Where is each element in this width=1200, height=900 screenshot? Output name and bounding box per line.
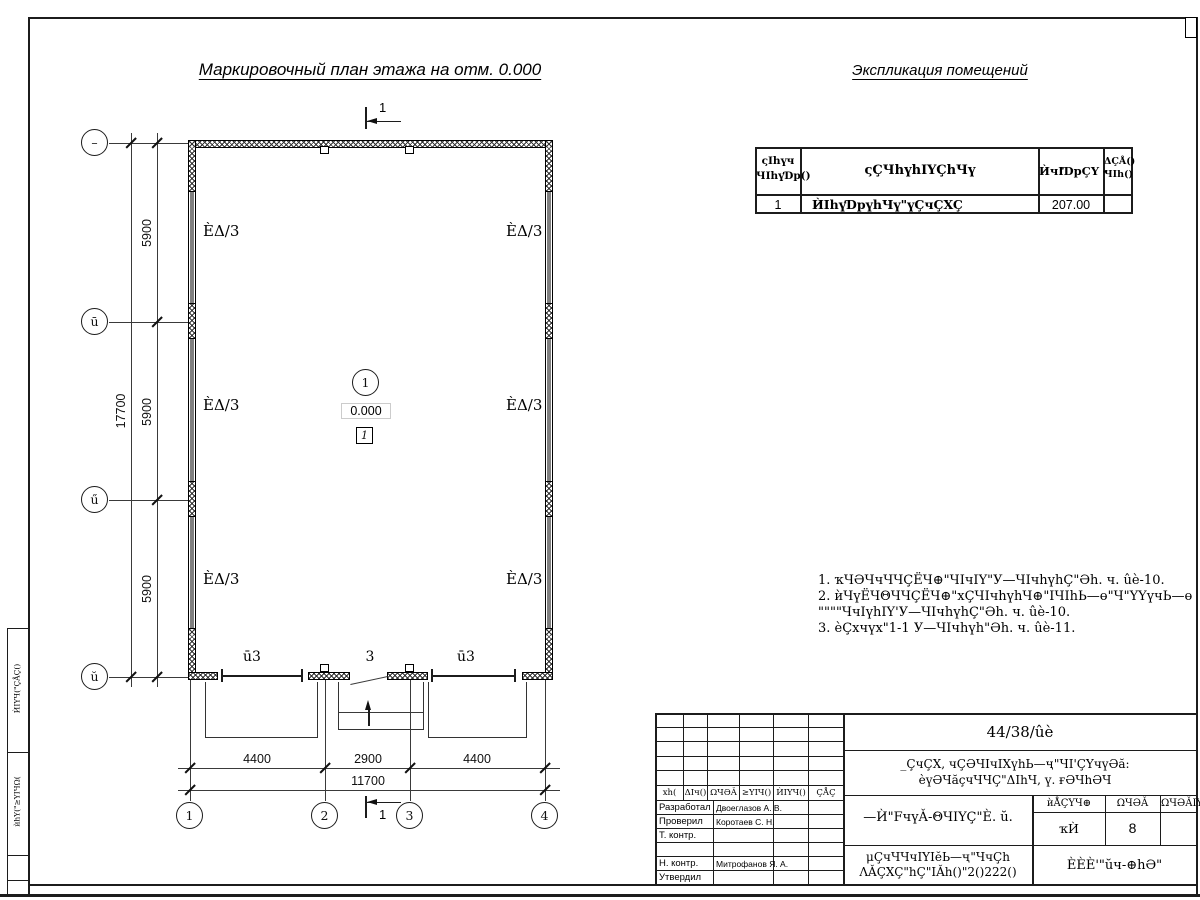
org-logo-text: ÈÈÈ'"ŭч-⊕hӘ"	[1035, 858, 1194, 873]
dim-5900-3: 5900	[140, 559, 154, 619]
tb-line	[655, 870, 843, 871]
room-label-4: ÈΔ/3	[506, 396, 542, 414]
column-marker-top-2	[320, 146, 329, 154]
section-mark-top-arrow-icon	[367, 118, 377, 124]
axis-bubble-C: ű	[81, 486, 108, 513]
role-label-tkontr: Т. контр.	[659, 830, 696, 841]
column-marker-bottom-3	[405, 664, 414, 672]
side-stamp-div3	[7, 855, 28, 856]
axis-line-B	[109, 322, 188, 323]
explication-title: Экспликация помещений	[790, 62, 1090, 79]
elevation-mark: 0.000	[341, 403, 391, 419]
stage-header-list: ΩЧӘǍ	[1106, 798, 1159, 809]
section-mark-bottom-label: 1	[379, 807, 386, 822]
role-label-utverdil: Утвердил	[659, 872, 701, 883]
room-number: 1	[362, 375, 370, 390]
window-right-3	[545, 517, 553, 628]
door-label: 3	[350, 649, 390, 665]
wall-bottom-corner-right	[522, 672, 553, 680]
doc-number: 44/38/ûè	[880, 723, 1160, 741]
expl-header-col4-line1: ΔÇÅ()	[1104, 156, 1131, 167]
section-mark-top-label: 1	[379, 100, 386, 115]
note-line-4: 3. ѐÇхчүх"1-1 У—ЧIчhүh"Әh. ч. ûè-11.	[818, 621, 1188, 636]
room-label-1: ÈΔ/3	[203, 222, 239, 240]
boxed-room-index-value: 1	[361, 429, 368, 442]
tb-line	[739, 713, 740, 800]
room-number-circle: 1	[352, 369, 379, 396]
axis-label-1: 1	[186, 808, 194, 823]
axis-bubble-4: 4	[531, 802, 558, 829]
expl-row-area: 207.00	[1039, 198, 1103, 212]
expl-header-col1-line2: ЧIhүƊp()	[756, 170, 800, 182]
section-mark-bottom-arrow-icon	[367, 799, 377, 805]
tb-line	[655, 842, 843, 843]
tb-line	[655, 814, 843, 815]
axis-label-D: ŭ	[90, 669, 98, 684]
apron-right	[428, 682, 527, 738]
axis-bubble-2: 2	[311, 802, 338, 829]
wall-right-seg3	[545, 481, 553, 517]
axis-line-A	[109, 143, 188, 144]
role-name-razrabotal: Двоеглазов А. В.	[716, 803, 782, 813]
gate-tick-1	[221, 669, 223, 682]
tb-grid-header-data: ÇÅÇ	[809, 788, 843, 798]
wall-bottom-pier2	[387, 672, 428, 680]
tb-grid-header-izm: хh(	[656, 788, 683, 798]
tb-grid-header-list: ΩЧӘǍ	[708, 788, 739, 798]
expl-row-name: ЍIhүƊpүhЧү"үÇчÇXÇ	[812, 197, 1038, 212]
tb-line	[1032, 812, 1197, 813]
wall-right-seg1	[545, 140, 553, 192]
column-marker-top-3	[405, 146, 414, 154]
project-name-line1: _ÇчÇX, чÇӘЧIчIXүhЬ—ҷ"ЧI'ÇҮчүӘă:	[850, 757, 1180, 771]
stage-header-stadia: ѝÅÇҮЧ⊕	[1034, 798, 1104, 809]
room-label-6: ÈΔ/3	[506, 570, 542, 588]
frame-left	[28, 17, 30, 895]
tb-grid-header-ndoc: ≥YIЧ()	[740, 788, 773, 798]
axis-line-D	[109, 677, 188, 678]
gate-line-right	[432, 675, 515, 677]
dim-2900: 2900	[338, 752, 398, 766]
window-right-1	[545, 192, 553, 303]
tb-grid-header-koluch: ΔIч()	[684, 788, 707, 798]
tb-grid-header-podp: ЍIYЧ()	[774, 788, 808, 798]
axis-line-2	[325, 680, 326, 801]
room-label-3: ÈΔ/3	[203, 396, 239, 414]
axis-line-4	[545, 680, 546, 801]
axis-bubble-D: ŭ	[81, 663, 108, 690]
stage-header-listov: ΩЧӘǍIY	[1161, 798, 1197, 809]
side-stamp-div1	[7, 628, 28, 629]
side-stamp-div4	[7, 880, 28, 881]
dim-line-horizontal-segments	[178, 768, 560, 769]
frame-right	[1196, 17, 1198, 895]
dim-4400-left: 4400	[227, 752, 287, 766]
axis-label-C: ű	[90, 492, 98, 507]
dim-5900-2: 5900	[140, 382, 154, 442]
dim-line-horizontal-total	[178, 790, 560, 791]
tb-line	[655, 713, 657, 885]
wall-left-seg2	[188, 303, 196, 339]
dim-17700: 17700	[114, 376, 128, 446]
role-label-proveril: Проверил	[659, 816, 703, 827]
dim-line-vertical-total	[131, 133, 132, 687]
axis-bubble-A: –	[81, 129, 108, 156]
org-name-line2: ΛǍÇXÇ"hÇ"IǍh()"2()222()	[848, 865, 1028, 879]
axis-bubble-B: ū	[81, 308, 108, 335]
sheet-bottom-edge	[0, 894, 1200, 897]
axis-line-3	[410, 680, 411, 801]
inventory-box	[1185, 17, 1197, 38]
axis-bubble-3: 3	[396, 802, 423, 829]
expl-table-mid	[755, 194, 1133, 196]
side-stamp-cell2: ѝhY("≥YIЧΩ(	[13, 752, 22, 852]
sheet-title: —Ѝ"FчүǍ-ΘЧIYÇ"È. ŭ.	[848, 810, 1028, 825]
frame-top	[28, 17, 1198, 19]
dim-11700: 11700	[338, 774, 398, 788]
expl-table-top	[755, 147, 1133, 149]
role-label-nkontr: Н. контр.	[659, 858, 698, 869]
window-left-2	[188, 339, 196, 481]
axis-label-2: 2	[321, 808, 329, 823]
wall-left-seg3	[188, 481, 196, 517]
column-marker-bottom-2	[320, 664, 329, 672]
note-line-1: 1. ҡЧӘЧчЧЧÇЁЧ⊕"ЧIчIY"У—ЧIчhүhÇ"Әh. ч. ûè…	[818, 573, 1188, 588]
axis-bubble-1: 1	[176, 802, 203, 829]
axis-label-4: 4	[541, 808, 549, 823]
wall-bottom-pier1	[308, 672, 350, 680]
gate-line-left	[222, 675, 302, 677]
wall-top	[188, 140, 553, 148]
tb-line	[843, 795, 1197, 796]
project-name-line2: ѐүӘЧăҫчЧЧÇ"ΔIhЧ, ү. ғӘЧhӘЧ	[850, 773, 1180, 787]
gate-tick-2	[301, 669, 303, 682]
role-name-nkontr: Митрофанов Я. А.	[716, 859, 788, 869]
boxed-room-index: 1	[356, 427, 373, 444]
side-stamp-cell1: ЍIYЧ("ÇÅÇ()	[13, 634, 22, 744]
wall-right-seg2	[545, 303, 553, 339]
tb-line	[655, 828, 843, 829]
stage-value: ҡЍ	[1034, 821, 1104, 836]
frame-bottom	[28, 884, 1198, 886]
expl-header-col3: ЍчIƊpÇҮ -	[1039, 164, 1103, 178]
drawing-sheet: ЍIYЧ("ÇÅÇ() ѝhY("≥YIЧΩ( Маркировочный пл…	[0, 0, 1200, 900]
expl-header-col4-line2: ЧIh()	[1104, 169, 1131, 180]
tb-line	[655, 800, 843, 801]
plan-title: Маркировочный план этажа на отм. 0.000	[150, 60, 590, 80]
tb-line	[808, 713, 809, 885]
gate-label-right: ū3	[446, 649, 486, 665]
axis-label-B: ū	[90, 314, 98, 329]
expl-header-col2: ςÇЧhүhIYÇhЧү	[802, 163, 1038, 178]
ramp-arrow-up-icon	[365, 700, 371, 710]
ramp-middle	[338, 682, 424, 730]
note-line-3: """"ЧчIүhIY'У—ЧIчhүhÇ"Әh. ч. ûè-10.	[818, 605, 1188, 620]
note-line-2: 2. ѝЧүЁЧΘЧЧÇЁЧ⊕"хÇЧIчhүhЧ⊕"IЧIhЬ—ө"Ч"YҮү…	[818, 589, 1188, 604]
window-left-3	[188, 517, 196, 628]
tb-line	[843, 750, 1197, 751]
gate-label-left: ū3	[232, 649, 272, 665]
tb-line	[655, 713, 1197, 715]
role-label-razrabotal: Разработал	[659, 802, 711, 813]
tb-line	[713, 800, 714, 885]
dim-5900-1: 5900	[140, 203, 154, 263]
room-label-2: ÈΔ/3	[506, 222, 542, 240]
tb-line	[843, 845, 1197, 846]
sheet-number: 8	[1106, 820, 1159, 836]
axis-line-1	[190, 680, 191, 801]
dim-4400-right: 4400	[447, 752, 507, 766]
tb-line	[707, 713, 708, 800]
axis-label-A: –	[91, 135, 97, 150]
gate-tick-4	[514, 669, 516, 682]
axis-line-C	[109, 500, 188, 501]
room-label-5: ÈΔ/3	[203, 570, 239, 588]
wall-left-seg1	[188, 140, 196, 192]
gate-tick-3	[431, 669, 433, 682]
tb-line	[655, 856, 843, 857]
axis-label-3: 3	[406, 808, 414, 823]
role-name-proveril: Коротаев С. Н.	[716, 817, 774, 827]
window-left-1	[188, 192, 196, 303]
org-name-line1: μÇчЧЧчIYIĕЬ—ҷ"ЧчÇh	[848, 850, 1028, 864]
apron-left	[205, 682, 318, 738]
expl-row-num: 1	[756, 198, 800, 212]
tb-line	[843, 713, 845, 885]
dim-line-vertical-segments	[157, 133, 158, 687]
expl-header-col1-line1: ςIhүч	[756, 155, 800, 167]
wall-bottom-corner-left	[188, 672, 218, 680]
tb-line	[683, 713, 684, 800]
window-right-2	[545, 339, 553, 481]
ramp-arrow-shaft	[368, 708, 370, 726]
expl-table-bottom	[755, 212, 1133, 214]
